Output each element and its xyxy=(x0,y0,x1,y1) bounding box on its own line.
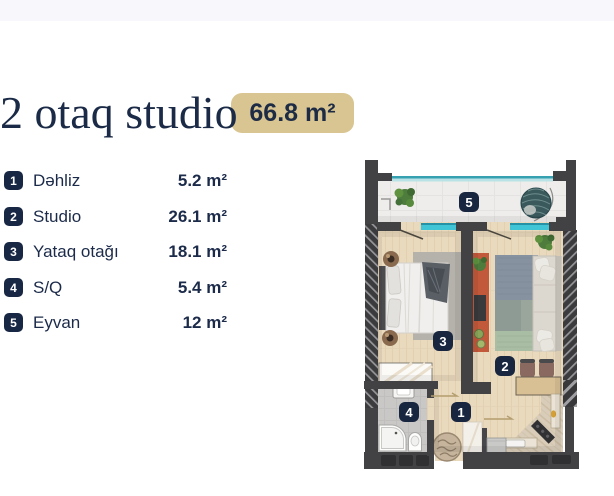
svg-text:5: 5 xyxy=(465,195,472,210)
svg-text:4: 4 xyxy=(405,405,413,420)
svg-text:1: 1 xyxy=(457,405,464,420)
svg-text:2: 2 xyxy=(501,359,508,374)
svg-text:3: 3 xyxy=(439,334,446,349)
